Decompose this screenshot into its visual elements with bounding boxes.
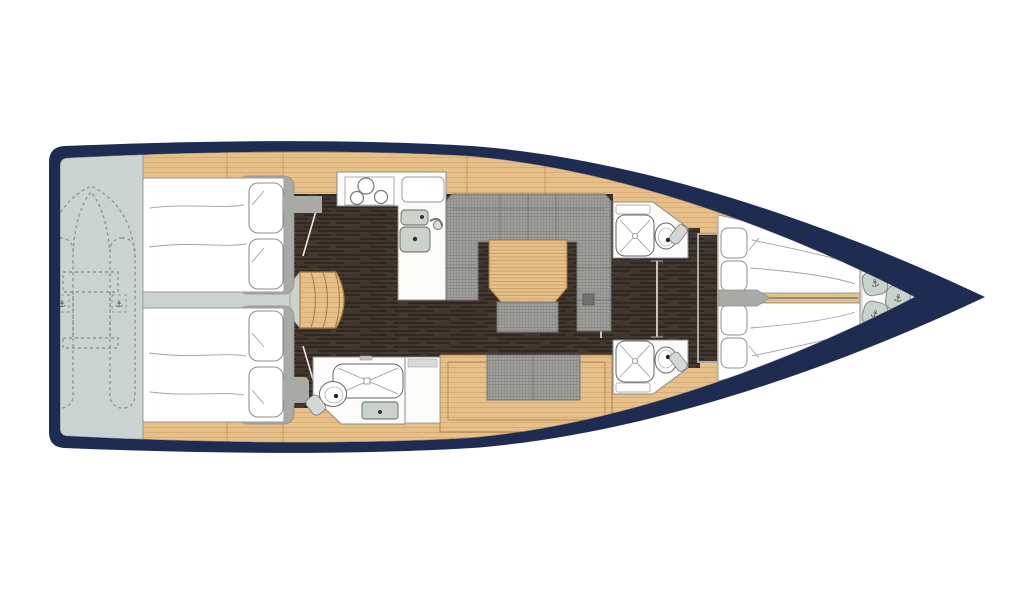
toilet-drain <box>334 394 338 398</box>
aft-cabin-port <box>143 176 294 294</box>
worktop <box>402 177 444 202</box>
burner <box>351 192 364 205</box>
wardrobe <box>698 234 718 362</box>
pillow <box>721 338 747 368</box>
pillow <box>721 305 747 335</box>
anchor-icon: ⚓ <box>893 293 903 305</box>
drain <box>378 410 382 414</box>
stool-bench <box>497 302 558 332</box>
floorplan-svg: ⚓ ⚓ ⚓ ⚓ ⚓ <box>0 0 1024 600</box>
seat <box>283 377 309 403</box>
aft-cabin-starboard <box>143 306 294 424</box>
companionway-stairs <box>300 272 344 328</box>
pillow <box>249 183 283 233</box>
shower-drain <box>633 359 638 364</box>
burner <box>358 178 374 194</box>
swim-platform-deck <box>58 139 143 461</box>
pillow <box>721 228 747 258</box>
locker-shelf <box>408 359 437 367</box>
yacht-floorplan: ⚓ ⚓ ⚓ ⚓ ⚓ <box>0 0 1024 600</box>
shower-drain <box>633 234 638 239</box>
floor-hatch <box>583 294 594 305</box>
interior: ⚓ ⚓ ⚓ ⚓ ⚓ <box>48 139 990 461</box>
bulkhead-trim <box>283 196 322 213</box>
drain <box>413 237 417 241</box>
pillow <box>249 239 283 289</box>
burner <box>375 191 388 204</box>
door-handle <box>360 356 372 360</box>
shower-drain <box>364 378 370 384</box>
pillow <box>721 261 747 291</box>
vanity-drawer <box>616 205 650 214</box>
sink-small <box>401 210 428 225</box>
salon-table <box>489 240 567 302</box>
vanity-drawer <box>616 383 650 392</box>
anchor-icon: ⚓ <box>115 300 123 310</box>
drain <box>420 215 424 219</box>
